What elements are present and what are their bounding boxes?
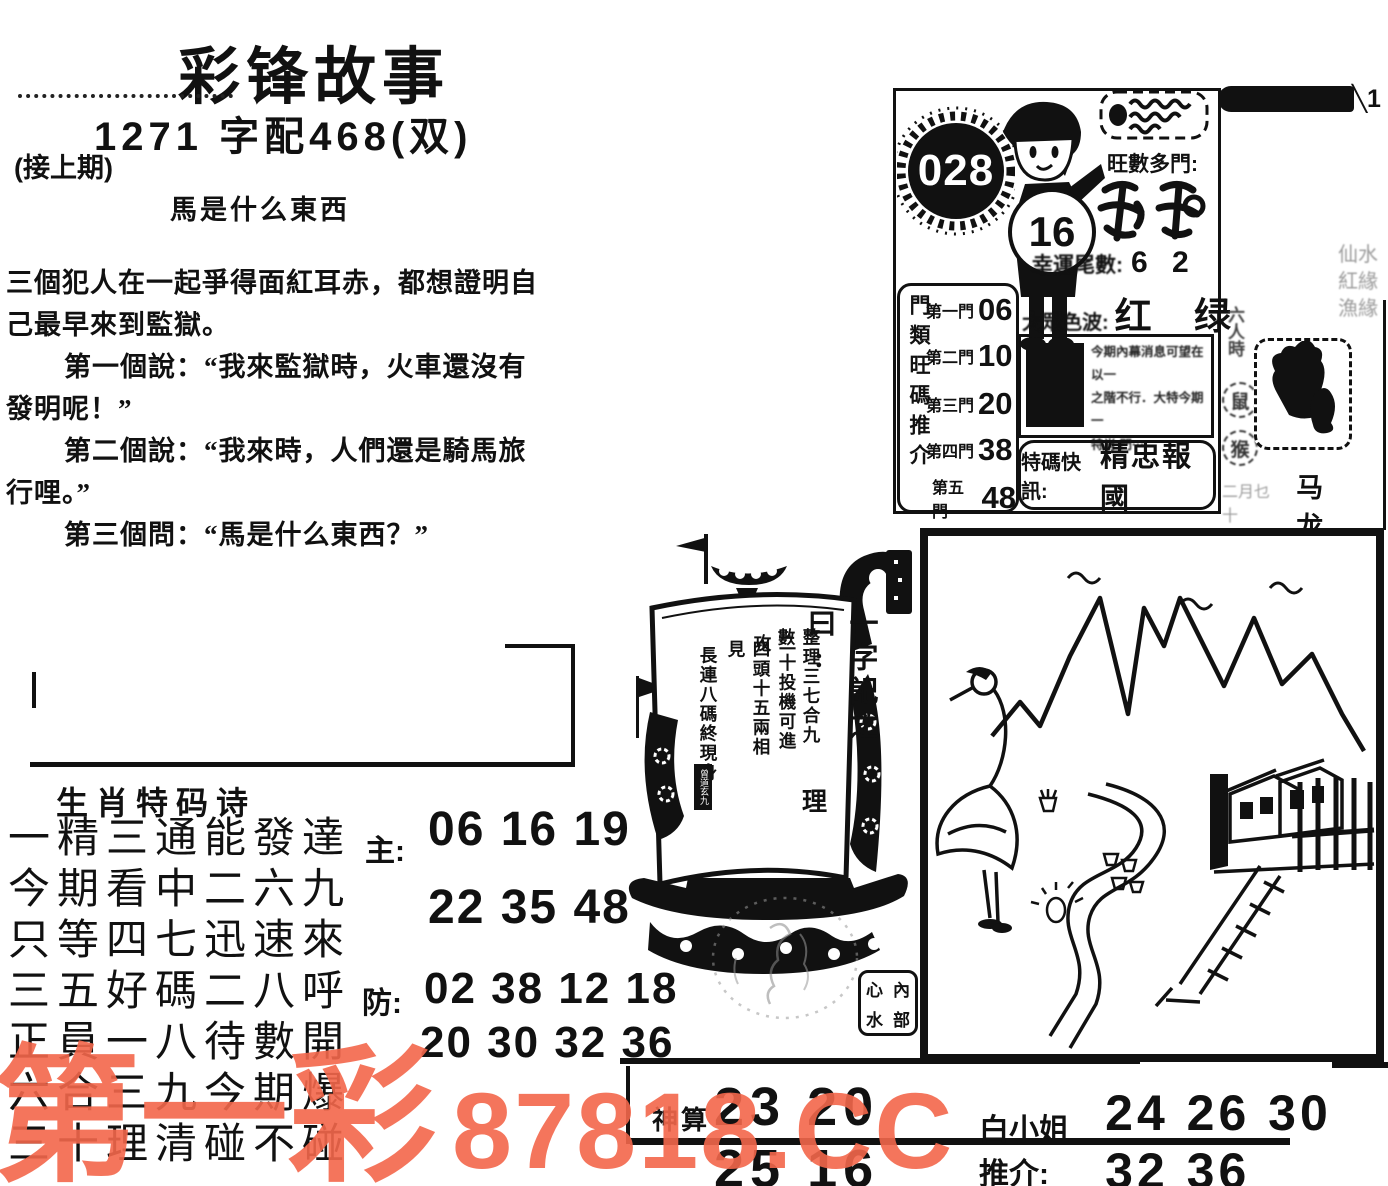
lucky-tail-row: 幸運尾數: 6 2 [1032, 246, 1197, 280]
door-label: 第三門 [926, 392, 974, 416]
inner-water-stamp: 心 內 水 部 [858, 970, 918, 1036]
zodiac-poem: 一精三通能發達 今期看中二六九 只等四七迅速來 三五好碼二八呼 正員一八待數開 … [8, 814, 351, 1171]
empty-box-top-edge [505, 644, 575, 648]
empty-box-right-edge [571, 644, 575, 766]
landscape-drawing-icon [928, 536, 1376, 1054]
speech-bubble-icon [1098, 88, 1210, 146]
poem-line: 六合三九今期爆 [8, 1069, 351, 1120]
door-row: 第三門 20 [926, 386, 1013, 422]
banner-corner-mark: ╲1 [1352, 84, 1381, 114]
top-banner-bar [1218, 86, 1354, 112]
outer-right-border [1383, 300, 1386, 530]
faint-note: 漁緣 [1318, 296, 1378, 323]
story-paragraph: 三個犯人在一起爭得面紅耳赤，都想證明自 己最早來到監獄。 第一個說：“我來監獄時… [6, 262, 546, 556]
door-recommend-box: 門類旺碼推介 第一門 06 第二門 10 第三門 20 第四門 38 第五門 4… [897, 283, 1019, 513]
strip-bottom-small: 二月乜十 [1222, 478, 1282, 526]
zodiac-circle-monkey: 猴 [1222, 430, 1258, 466]
door-label: 第二門 [926, 344, 974, 368]
faint-note: 仙水 [1318, 242, 1378, 269]
story-line: 第一個說：“我來監獄時，火車還沒有 [6, 346, 546, 388]
corner-seal-icon [886, 550, 912, 614]
door-label: 第五門 [932, 474, 978, 522]
poem-line: 三五好碼二八呼 [8, 967, 351, 1018]
door-value: 48 [982, 480, 1016, 516]
story-line: 發明呢！” [6, 388, 546, 430]
side-vertical-label: 六人時 [1222, 306, 1247, 370]
story-subject: 馬是什么東西 [170, 188, 350, 227]
animal-silhouettes-icon [1257, 341, 1343, 441]
color-wave-label: 大眾色波: [1022, 306, 1109, 335]
door-label: 第四門 [926, 438, 974, 462]
stamp-char: 心 [866, 976, 883, 1001]
door-row: 第四門 38 [926, 432, 1013, 468]
empty-box-left-tick [32, 672, 36, 708]
sail-seal: 曾道玄九 [694, 764, 712, 810]
special-code-label: 特碼快訊: [1021, 446, 1100, 504]
lucky-tail-label: 幸運尾數: [1032, 249, 1123, 279]
story-line: 行哩。” [6, 472, 546, 514]
page-title: 彩锋故事 [178, 26, 450, 116]
door-row: 第二門 10 [926, 338, 1013, 374]
blackout-square [1026, 343, 1084, 427]
color-wave-row: 大眾色波: 红 绿 [1022, 286, 1247, 340]
dotted-separator [18, 94, 233, 98]
lucky-tail-value: 6 2 [1131, 246, 1197, 280]
sail-column: 四頭十五兩相見 [724, 640, 774, 775]
algo-label: 神算 [652, 1100, 710, 1137]
insider-line: 今期內幕消息可望在以一 [1091, 341, 1207, 387]
main-numbers-label: 主: [365, 826, 405, 870]
story-line: 三個犯人在一起爭得面紅耳赤，都想證明自 [6, 262, 546, 304]
stamp-char: 水 [866, 1006, 883, 1031]
landscape-picture-frame [920, 528, 1384, 1062]
stamp-char: 內 [893, 976, 910, 1001]
stamp-char: 部 [893, 1006, 910, 1031]
bottom-numbers-row: 23 20 25 16 白小姐推介: 24 26 30 32 36 [714, 1076, 1388, 1186]
empty-box-bottom-edge [30, 762, 575, 767]
door-row: 第一門 06 [926, 292, 1013, 328]
poem-line: 今期看中二六九 [8, 865, 351, 916]
main-numbers-row1: 06 16 19 [428, 802, 631, 857]
door-value: 38 [978, 432, 1012, 468]
main-numbers-row2: 22 35 48 [428, 880, 631, 935]
story-line: 第三個問：“馬是什么東西？” [6, 514, 546, 556]
issue-number: 028 [918, 146, 994, 196]
poem-line: 一精三通能發達 [8, 814, 351, 865]
zodiac-circle-rat: 鼠 [1222, 382, 1258, 418]
door-value: 20 [978, 386, 1012, 422]
continued-note: (接上期) [14, 146, 113, 185]
poem-line: 三十理清碰不碰 [8, 1120, 351, 1171]
door-value: 10 [978, 338, 1012, 374]
sail-motto-char: 理 [802, 782, 827, 818]
poem-line: 正員一八待數開 [8, 1018, 351, 1069]
special-code-box: 特碼快訊: 精忠報國 [1018, 440, 1216, 510]
story-line: 第二個說：“我來時，人們還是騎馬旅 [6, 430, 546, 472]
door-value: 06 [978, 292, 1012, 328]
hot-doors-label: 旺數多門: [1107, 148, 1198, 178]
bottom-strip-top-line [620, 1058, 1140, 1064]
bottom-strip-top-line-right [1332, 1062, 1388, 1068]
insider-message-box: 今期內幕消息可望在以一 之階不行．大特今期一 特肖 門··· [1018, 334, 1214, 438]
faint-round-stamp-icon [700, 888, 870, 1028]
poem-line: 只等四七迅速來 [8, 916, 351, 967]
bottom-right-numbers: 24 26 30 32 36 [1105, 1084, 1388, 1186]
faint-side-notes: 仙水 紅緣 漁緣 [1318, 242, 1378, 323]
door-label: 第一門 [926, 298, 974, 322]
guard-numbers-label: 防: [362, 978, 402, 1022]
stylized-zodiac-glyphs-icon [1095, 176, 1210, 246]
tip-lady-label: 白小姐推介: [979, 1105, 1095, 1186]
bottom-strip-left-bracket [626, 1066, 630, 1144]
animal-card [1254, 338, 1352, 450]
tip-sheet-page: 彩锋故事 1271 字配468(双) (接上期) 馬是什么東西 三個犯人在一起爭… [0, 0, 1388, 1186]
story-line: 己最早來到監獄。 [6, 304, 546, 346]
bottom-left-numbers: 23 20 25 16 [714, 1076, 969, 1186]
insider-line: 之階不行．大特今期一 [1091, 387, 1207, 433]
faint-note: 紅緣 [1318, 269, 1378, 296]
door-row: 第五門 48 [932, 474, 1016, 522]
special-code-value: 精忠報國 [1100, 433, 1213, 517]
number-pairing-line: 1271 字配468(双) [94, 104, 472, 162]
